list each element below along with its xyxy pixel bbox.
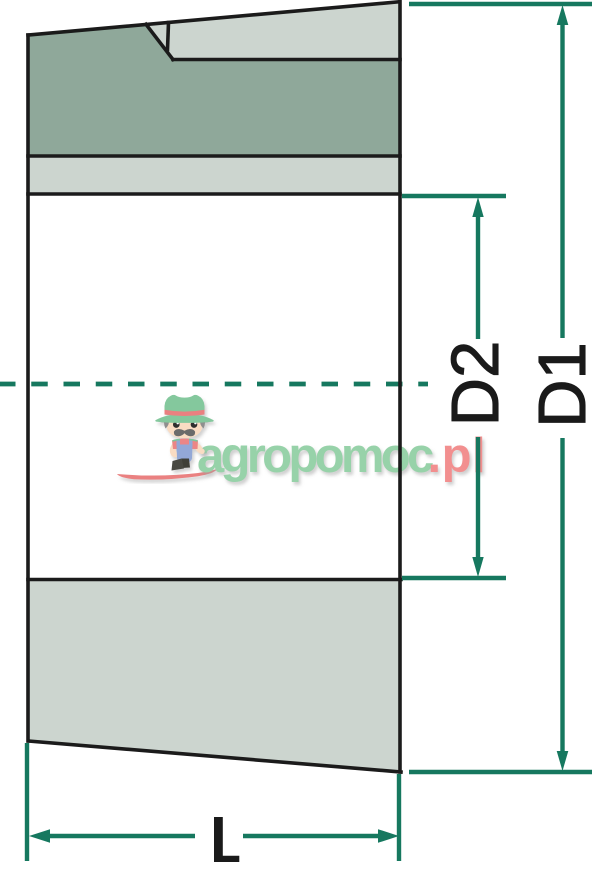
svg-text:D1: D1 bbox=[525, 342, 600, 428]
svg-text:agropomoc: agropomoc bbox=[197, 429, 433, 483]
svg-text:D2: D2 bbox=[438, 341, 513, 427]
